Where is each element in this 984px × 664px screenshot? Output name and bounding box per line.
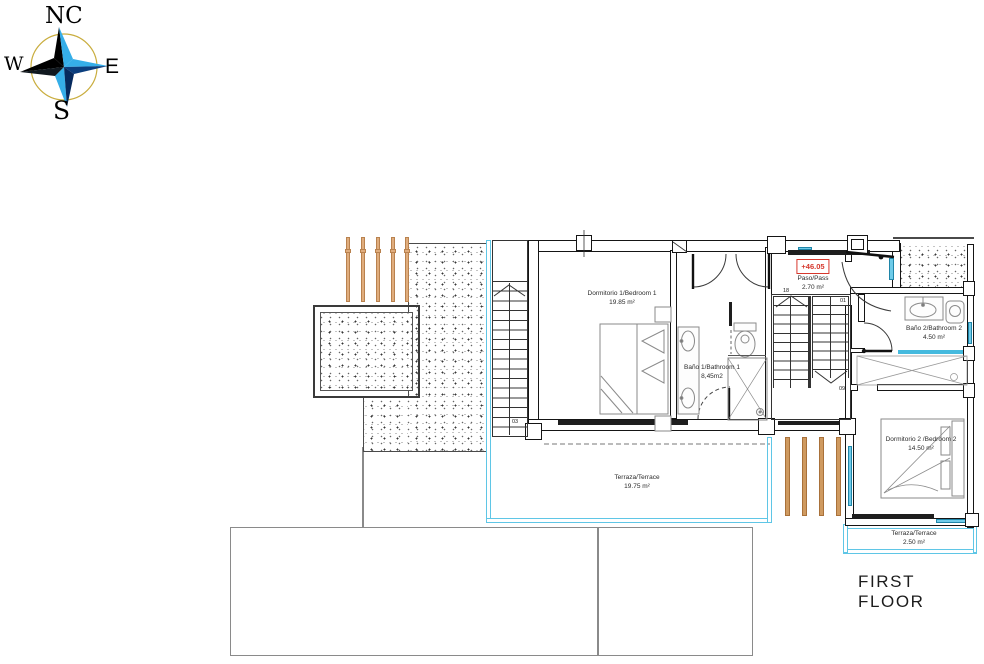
bed-1 [600,307,671,431]
compass-north-label: NC [45,3,83,29]
terrace-slat [819,437,824,516]
column [965,513,979,527]
wall-left-main [528,240,539,431]
compass-south-label: S [53,96,70,125]
double-door-bedroom1 [693,254,769,289]
pergola-slat-cross [375,249,382,253]
pergola-slat-cross [404,249,411,253]
column [839,418,856,435]
column [576,235,592,251]
room-area: 4.50 m² [906,334,962,343]
wall-bathroom2-left [858,294,865,322]
terrace2-glass-left [843,524,848,553]
room-name: Baño 1/Bathroom 1 [684,364,740,373]
room-area: 2.50 m² [891,539,936,548]
ground-floor-divider [597,527,599,656]
room-name: Baño 2/Bathroom 2 [906,325,962,334]
column [847,235,868,254]
gravel-border [893,237,974,239]
terrace2-glass-right [973,524,978,553]
glass-balustrade-left [486,240,491,523]
room-label-terrace-main: Terraza/Terrace 19.75 m² [614,474,659,492]
terrace2-glass-bottom [843,549,977,554]
terrace-slat [836,437,841,516]
first-floor-plan: NC W E S [0,0,984,664]
pergola-slat [346,237,350,302]
skylight-box-inner [320,312,413,391]
stair-number: 09 [839,386,845,392]
room-name: Paso/Pass [796,275,829,284]
bed-2 [881,419,964,498]
stair-number: 03 [512,419,518,425]
level-marker: +46.05 [796,259,829,274]
wall-bathroom2-bottom-left [850,384,858,391]
column [963,281,975,296]
pergola-slat [376,237,380,302]
pergola-slat [391,237,395,302]
window-glass [798,247,812,250]
room-label-bathroom1: Baño 1/Bathroom 1 8,45m2 [684,364,740,382]
stair-number: 01 [840,298,846,304]
gravel-border [363,397,364,452]
wall-bathroom2-bottom [877,384,974,391]
column [758,418,775,435]
window-bar-stair [778,421,842,425]
gravel-border [363,451,488,452]
wall-bathroom2-top [850,287,974,294]
column [963,346,975,361]
compass-west-label: W [4,53,24,75]
toilet-niche-wall [729,302,732,326]
room-label-bedroom2: Dormitorio 2 /Bedroom 2 14.50 m² [886,436,957,454]
wall-bathroom2-door-stub [850,348,865,353]
compass-rose: NC W E S [0,0,135,135]
gravel-area-main [408,243,488,452]
door-bathroom2 [862,323,892,353]
pergola-slat [405,237,409,302]
room-label-bathroom2: Baño 2/Bathroom 2 4.50 m² [906,325,962,343]
room-area: 8,45m2 [684,373,740,382]
glass-balustrade-bottom [486,518,772,523]
window-glass [968,322,972,344]
interior-stair-centerline [790,296,791,388]
terrace-slat [785,437,790,516]
glass-balustrade-right [767,437,772,523]
window-glass [889,258,894,280]
pergola-slat [361,237,365,302]
door-bathroom1 [698,387,730,419]
room-name: Terraza/Terrace [891,530,936,539]
ground-floor-edge-line [362,447,364,527]
column [963,383,975,398]
wall-bathroom1-left [670,250,677,419]
room-label-paso: +46.05 Paso/Pass 2.70 m² [796,259,829,293]
room-area: 19.85 m² [588,299,657,308]
floor-title: FIRST FLOOR [858,572,984,612]
stair-number: 18 [783,288,789,294]
shower-area-wing [857,356,967,385]
pergola-slat-cross [345,249,352,253]
gravel-area-top-right [901,246,967,287]
interior-stair-centerline [830,296,831,378]
room-name: Dormitorio 1/Bedroom 1 [588,290,657,299]
sliding-door-bedroom1 [558,420,688,425]
room-name: Dormitorio 2 /Bedroom 2 [886,436,957,445]
gravel-border [408,243,488,244]
room-area: 14.50 m² [886,445,957,454]
room-name: Terraza/Terrace [614,474,659,483]
ground-floor-outline [230,527,753,656]
room-label-bedroom1: Dormitorio 1/Bedroom 1 19.85 m² [588,290,657,308]
window-glass [848,446,852,506]
interior-stair-divider [809,296,811,388]
interior-stair-flight-up [773,296,809,388]
exterior-stair-centerline [509,283,510,435]
shower-glass-screen [898,350,968,354]
terrace-slat [802,437,807,516]
pergola-slat-cross [360,249,367,253]
pergola-slat-cross [390,249,397,253]
sliding-door-bedroom2 [852,514,934,519]
room-label-terrace-small: Terraza/Terrace 2.50 m² [891,530,936,548]
exterior-stair-treads [492,281,528,436]
gravel-area-lower [363,397,408,452]
bathroom2-fixtures [905,297,964,323]
room-area: 19.75 m² [614,483,659,492]
compass-east-label: E [105,55,119,79]
column [672,240,687,253]
column [767,236,786,254]
room-area: 2.70 m² [796,284,829,293]
